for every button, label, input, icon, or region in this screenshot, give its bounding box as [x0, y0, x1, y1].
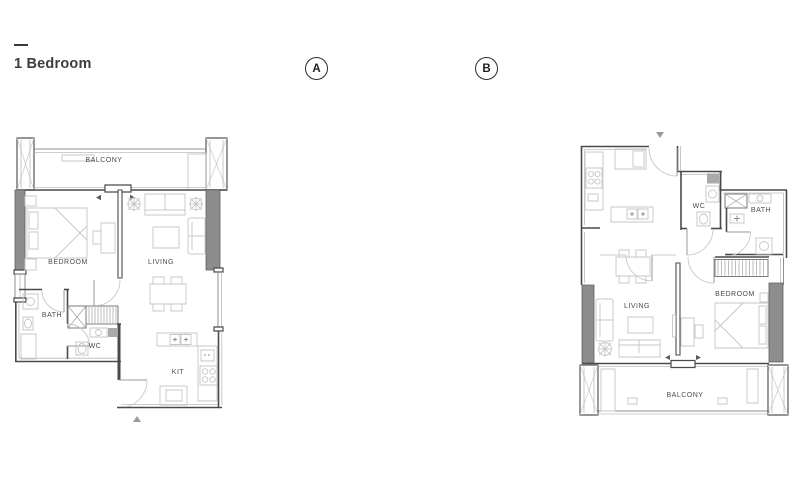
plant-icon — [598, 342, 612, 356]
wc: WC — [681, 172, 722, 255]
bedroom-door — [688, 257, 714, 283]
living: LIVING — [127, 194, 205, 266]
kitchen-label: KIT — [172, 369, 185, 376]
entry-arrow-icon — [656, 132, 664, 138]
wall — [676, 263, 680, 355]
nightstand-icon — [760, 293, 768, 302]
wall — [769, 283, 783, 362]
sofa-icon — [619, 340, 660, 357]
bath-label: BATH — [751, 207, 771, 214]
desk-icon — [681, 318, 703, 346]
toilet-icon — [23, 317, 33, 330]
bath-door — [42, 290, 64, 312]
island-sink-icon — [611, 207, 653, 222]
sink-icon — [90, 328, 107, 337]
coffee-table-icon — [153, 227, 179, 248]
title-dash — [14, 44, 28, 46]
living: LIVING — [596, 299, 660, 357]
balcony-door — [671, 361, 695, 368]
bedroom-label: BEDROOM — [715, 291, 755, 298]
living-door — [600, 255, 676, 281]
toilet-icon — [76, 342, 88, 355]
bath-label: BATH — [42, 312, 62, 319]
toilet-icon — [697, 212, 710, 226]
wall — [581, 146, 600, 285]
entry-door — [119, 380, 147, 408]
armchair-icon — [596, 299, 613, 341]
armchair-icon — [188, 218, 205, 254]
heater — [707, 174, 719, 184]
variant-badge-a: A — [305, 57, 328, 80]
bedroom: BEDROOM — [681, 291, 768, 348]
plant-icon — [189, 197, 203, 211]
plant-icon — [127, 197, 141, 211]
balcony-label: BALCONY — [667, 392, 704, 399]
cabinet — [201, 350, 214, 361]
wc-label: WC — [89, 343, 102, 350]
variant-a-label: A — [312, 63, 320, 75]
nightstand-icon — [25, 259, 36, 270]
duct — [108, 328, 117, 337]
sink-icon — [749, 194, 771, 203]
page: 1 Bedroom A B BALCONY — [0, 0, 800, 479]
kitchen — [585, 149, 653, 222]
entry-door — [649, 148, 677, 176]
bedroom-door — [94, 280, 120, 306]
sink-icon — [730, 214, 744, 223]
bath-door — [727, 232, 751, 256]
shaft — [725, 194, 747, 208]
wall — [582, 355, 769, 368]
cabinet — [588, 194, 598, 201]
column — [17, 138, 34, 190]
entry-arrow-icon — [133, 416, 141, 422]
coffee-table-icon — [628, 317, 653, 333]
dining-table-icon — [150, 277, 186, 311]
balcony: BALCONY — [34, 149, 206, 164]
sofa-icon — [145, 194, 185, 215]
living-label: LIVING — [148, 259, 174, 266]
shower-icon — [21, 334, 36, 359]
stove-icon — [200, 366, 217, 385]
wall-return — [188, 154, 206, 190]
balcony: BALCONY — [595, 369, 771, 414]
window — [214, 268, 223, 331]
wall — [781, 190, 787, 285]
bed-icon — [715, 303, 768, 348]
slide-arrow-icon — [665, 355, 670, 360]
sink-icon — [170, 335, 191, 345]
cabinet — [160, 386, 187, 405]
tv-icon — [673, 315, 676, 337]
slide-arrow-icon — [696, 355, 701, 360]
bedroom-label: BEDROOM — [48, 259, 88, 266]
column — [580, 365, 598, 415]
closet-hatch — [715, 260, 768, 277]
floor-plan-a: BALCONY — [10, 128, 232, 430]
washer-icon — [756, 238, 772, 254]
living-label: LIVING — [624, 303, 650, 310]
desk-icon — [93, 223, 115, 253]
page-title: 1 Bedroom — [14, 56, 92, 72]
bath: BATH — [19, 290, 69, 360]
column — [206, 138, 227, 190]
shaft — [68, 306, 86, 328]
stove-icon — [586, 168, 602, 188]
balcony-label: BALCONY — [86, 157, 123, 164]
bedroom: BEDROOM — [25, 196, 115, 270]
slide-arrow-icon — [96, 195, 101, 200]
bed-icon — [27, 208, 87, 258]
nightstand-icon — [25, 196, 36, 206]
window — [14, 270, 26, 302]
floor-plan-b: BALCONY — [575, 128, 790, 423]
wall — [206, 190, 220, 270]
variant-badge-b: B — [475, 57, 498, 80]
column — [768, 365, 788, 415]
page-header: 1 Bedroom — [14, 44, 92, 72]
closet-hatch — [86, 306, 118, 324]
fridge-icon — [615, 149, 646, 169]
wc-label: WC — [693, 203, 706, 210]
wc: WC — [68, 324, 122, 358]
wall — [15, 190, 25, 272]
variant-b-label: B — [482, 63, 490, 75]
wall — [581, 146, 787, 193]
wall — [582, 285, 594, 363]
kitchen: KIT — [157, 333, 217, 405]
wall — [118, 190, 122, 278]
wc-door — [687, 229, 713, 255]
sink-icon — [706, 186, 719, 202]
